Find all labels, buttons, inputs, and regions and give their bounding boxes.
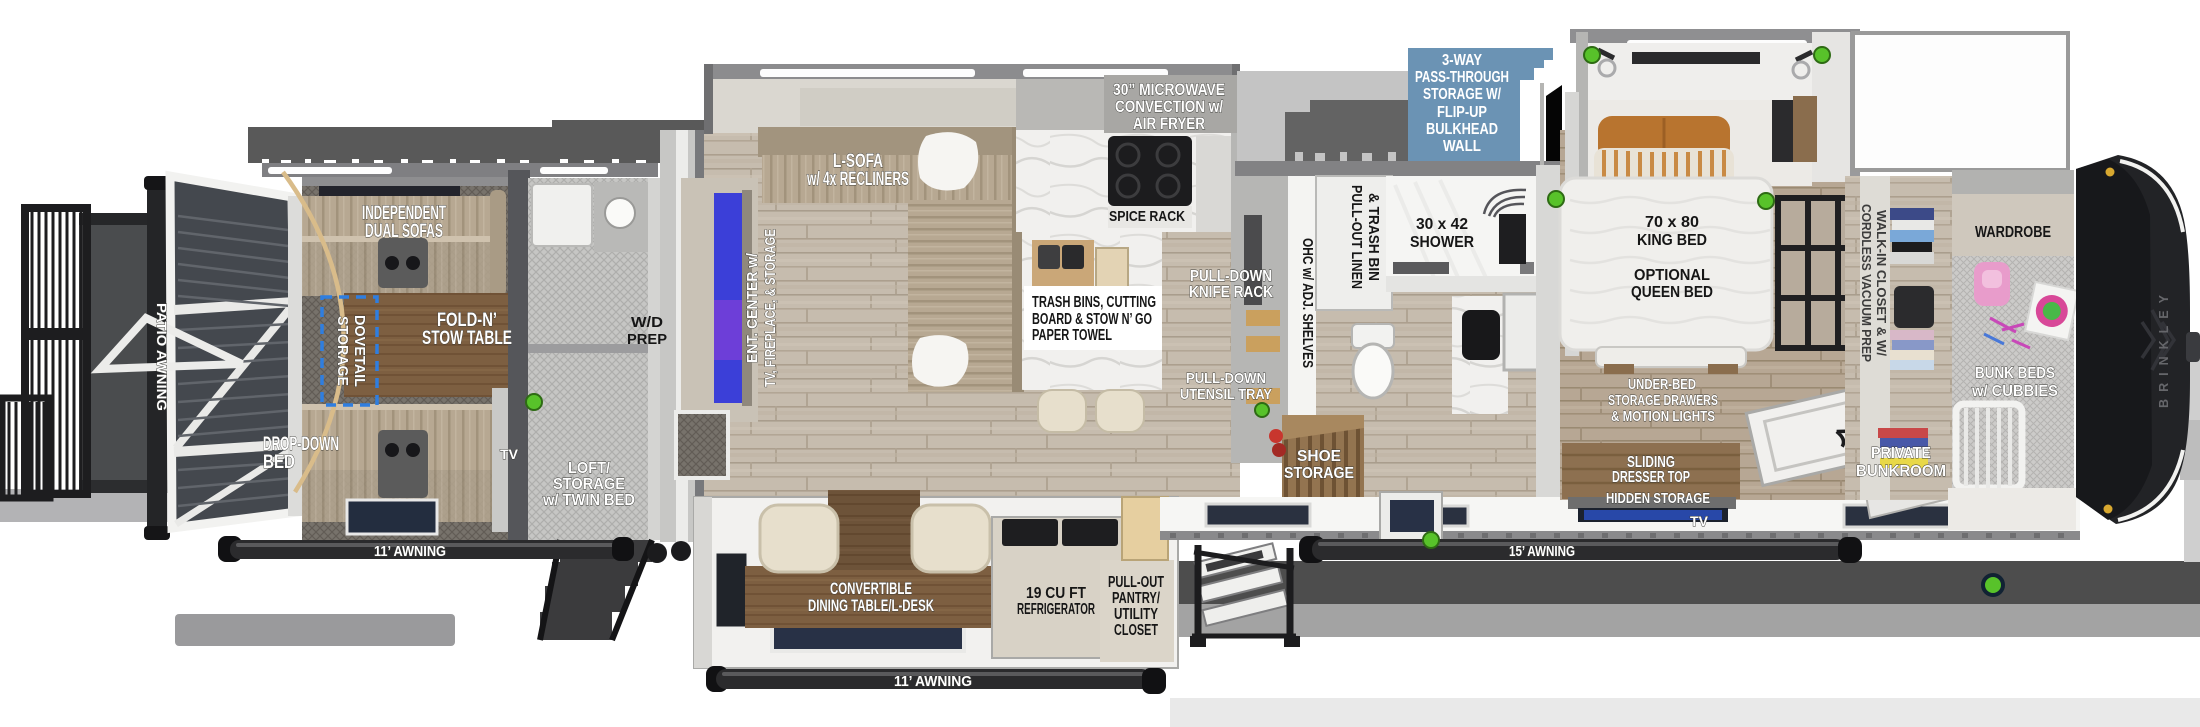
svg-text:15’ AWNING: 15’ AWNING bbox=[1509, 544, 1575, 560]
svg-text:W/D: W/D bbox=[631, 314, 663, 331]
svg-text:DINING TABLE/L-DESK: DINING TABLE/L-DESK bbox=[808, 596, 934, 615]
svg-text:30 x 42: 30 x 42 bbox=[1416, 216, 1468, 233]
svg-text:BULKHEAD: BULKHEAD bbox=[1426, 121, 1498, 138]
svg-text:& MOTION LIGHTS: & MOTION LIGHTS bbox=[1611, 408, 1715, 425]
svg-text:OPTIONAL: OPTIONAL bbox=[1634, 267, 1710, 284]
svg-text:TV: TV bbox=[1690, 513, 1709, 529]
svg-text:PASS-THROUGH: PASS-THROUGH bbox=[1415, 69, 1509, 86]
svg-text:PREP: PREP bbox=[627, 331, 667, 348]
svg-text:WALK-IN CLOSET & W/: WALK-IN CLOSET & W/ bbox=[1874, 210, 1889, 356]
svg-text:BUNKROOM: BUNKROOM bbox=[1856, 463, 1946, 480]
svg-text:BED: BED bbox=[263, 452, 295, 473]
svg-text:70 x 80: 70 x 80 bbox=[1645, 214, 1699, 231]
svg-text:KNIFE RACK: KNIFE RACK bbox=[1189, 284, 1274, 301]
svg-text:CONVECTION w/: CONVECTION w/ bbox=[1115, 98, 1223, 116]
svg-text:AIR FRYER: AIR FRYER bbox=[1133, 115, 1205, 133]
svg-text:PAPER TOWEL: PAPER TOWEL bbox=[1032, 327, 1112, 344]
svg-text:BUNK BEDS: BUNK BEDS bbox=[1975, 365, 2055, 382]
svg-text:30” MICROWAVE: 30” MICROWAVE bbox=[1113, 81, 1225, 99]
svg-text:BOARD & STOW N’ GO: BOARD & STOW N’ GO bbox=[1032, 311, 1152, 328]
svg-text:& TRASH BIN: & TRASH BIN bbox=[1365, 193, 1381, 281]
svg-text:TV, FIREPLACE, & STORAGE: TV, FIREPLACE, & STORAGE bbox=[762, 229, 779, 387]
svg-text:PULL-OUT: PULL-OUT bbox=[1108, 574, 1164, 591]
svg-text:STORAGE: STORAGE bbox=[553, 476, 625, 493]
svg-text:DRESSER TOP: DRESSER TOP bbox=[1612, 469, 1690, 486]
svg-text:STORAGE: STORAGE bbox=[1284, 465, 1354, 482]
svg-text:STORAGE W/: STORAGE W/ bbox=[1423, 86, 1502, 103]
svg-text:w/ TWIN BED: w/ TWIN BED bbox=[542, 492, 635, 509]
svg-text:TV: TV bbox=[500, 446, 519, 462]
svg-text:DOVETAIL: DOVETAIL bbox=[351, 315, 367, 387]
svg-text:PANTRY/: PANTRY/ bbox=[1112, 590, 1160, 607]
svg-text:w/ CUBBIES: w/ CUBBIES bbox=[1971, 383, 2058, 400]
svg-text:STORAGE: STORAGE bbox=[334, 316, 350, 386]
svg-text:11’ AWNING: 11’ AWNING bbox=[894, 674, 972, 690]
svg-text:19 CU FT: 19 CU FT bbox=[1026, 585, 1086, 602]
svg-text:WALL: WALL bbox=[1443, 138, 1481, 155]
svg-text:PRIVATE: PRIVATE bbox=[1871, 445, 1931, 462]
svg-text:OHC w/ ADJ. SHELVES: OHC w/ ADJ. SHELVES bbox=[1299, 238, 1316, 368]
svg-text:PULL-OUT LINEN: PULL-OUT LINEN bbox=[1348, 185, 1364, 289]
svg-text:DUAL SOFAS: DUAL SOFAS bbox=[365, 221, 443, 242]
svg-text:ENT. CENTER w/: ENT. CENTER w/ bbox=[744, 252, 761, 363]
svg-text:QUEEN BED: QUEEN BED bbox=[1631, 284, 1713, 301]
svg-text:SHOE: SHOE bbox=[1297, 448, 1341, 465]
svg-text:TRASH BINS, CUTTING: TRASH BINS, CUTTING bbox=[1032, 294, 1156, 311]
svg-text:11’ AWNING: 11’ AWNING bbox=[374, 544, 446, 560]
svg-text:KING BED: KING BED bbox=[1637, 232, 1707, 249]
svg-text:UTILITY: UTILITY bbox=[1114, 606, 1158, 623]
svg-text:STOW TABLE: STOW TABLE bbox=[422, 328, 512, 349]
svg-text:w/ 4x RECLINERS: w/ 4x RECLINERS bbox=[806, 169, 909, 190]
svg-text:PULL-DOWN: PULL-DOWN bbox=[1186, 370, 1266, 387]
svg-text:WARDROBE: WARDROBE bbox=[1975, 224, 2051, 241]
svg-text:SHOWER: SHOWER bbox=[1410, 234, 1474, 251]
svg-text:CLOSET: CLOSET bbox=[1114, 622, 1158, 639]
svg-text:PATIO AWNING: PATIO AWNING bbox=[154, 303, 170, 411]
svg-text:LOFT/: LOFT/ bbox=[568, 460, 611, 477]
svg-text:PULL-DOWN: PULL-DOWN bbox=[1190, 268, 1272, 285]
svg-text:UNDER-BED: UNDER-BED bbox=[1628, 376, 1696, 393]
svg-text:FLIP-UP: FLIP-UP bbox=[1437, 104, 1487, 121]
svg-text:HIDDEN STORAGE: HIDDEN STORAGE bbox=[1606, 490, 1710, 507]
svg-text:BRINKLEY: BRINKLEY bbox=[2157, 288, 2171, 408]
svg-text:CORDLESS VACUUM PREP: CORDLESS VACUUM PREP bbox=[1859, 204, 1874, 362]
svg-text:REFRIGERATOR: REFRIGERATOR bbox=[1017, 601, 1095, 618]
svg-text:UTENSIL TRAY: UTENSIL TRAY bbox=[1180, 386, 1272, 403]
svg-text:3-WAY: 3-WAY bbox=[1442, 52, 1483, 69]
svg-text:STORAGE DRAWERS: STORAGE DRAWERS bbox=[1608, 392, 1718, 409]
svg-text:SPICE RACK: SPICE RACK bbox=[1109, 208, 1185, 225]
